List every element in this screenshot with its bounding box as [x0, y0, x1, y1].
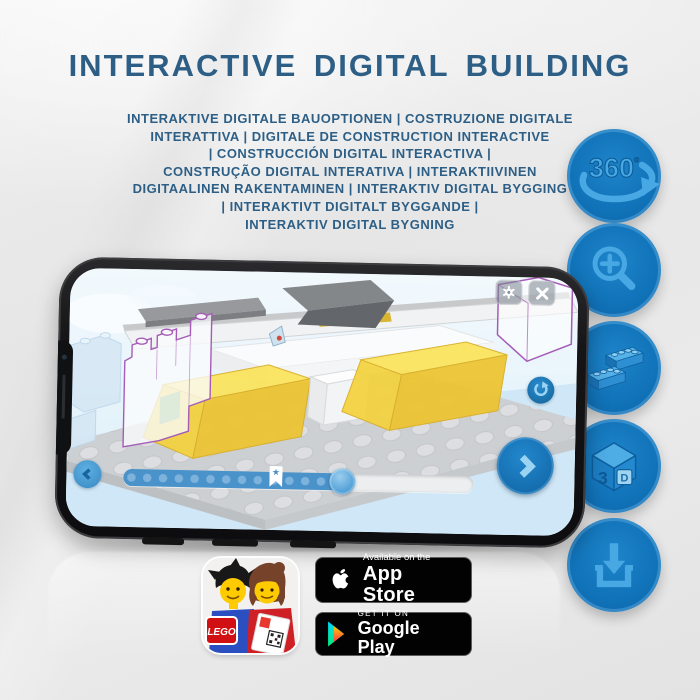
- google-play-text: GET IT ON Google Play: [358, 610, 460, 658]
- phone-reflection: [48, 552, 560, 698]
- next-chevron-icon: [508, 448, 543, 483]
- degree-sign: º: [634, 154, 639, 170]
- back-chevron-icon: [78, 465, 96, 483]
- subtitle-line: INTERAKTIV DIGITAL BYGNING: [50, 216, 650, 234]
- phone-button: [290, 540, 336, 548]
- zoom-in-icon: [581, 237, 647, 303]
- feature-download: [567, 518, 661, 612]
- google-play-triangle-icon: [327, 621, 349, 647]
- phone-screen: ★: [65, 268, 578, 537]
- download-icon: [581, 532, 647, 598]
- gear-icon: [500, 284, 517, 301]
- subtitle: INTERAKTIVE DIGITALE BAUOPTIONEN | COSTR…: [50, 110, 650, 233]
- app-store-badge[interactable]: Available on the App Store: [315, 557, 472, 603]
- rotate-icon: [531, 380, 550, 399]
- poster: INTERACTIVE DIGITAL BUILDING INTERAKTIVE…: [0, 0, 700, 700]
- lego-scene: [65, 268, 578, 537]
- app-store-line1: Available on the: [363, 553, 460, 563]
- subtitle-line: CONSTRUÇÃO DIGITAL INTERATIVA | INTERAKT…: [50, 163, 650, 181]
- phone-mockup: ★: [54, 256, 590, 548]
- subtitle-line: INTERAKTIVE DIGITALE BAUOPTIONEN | COSTR…: [50, 110, 650, 128]
- speaker-slit: [62, 374, 66, 418]
- cube-d-label: D: [620, 473, 628, 485]
- settings-button[interactable]: [495, 280, 523, 306]
- app-store-line2: App Store: [363, 564, 460, 607]
- apple-logo-icon: [327, 566, 354, 595]
- google-play-line2: Google Play: [358, 619, 460, 658]
- 3d-cube-icon: 3 D: [579, 431, 649, 501]
- subtitle-line: INTERATTIVA | DIGITALE DE CONSTRUCTION I…: [50, 128, 650, 146]
- phone-notch: [56, 340, 73, 454]
- subtitle-line: | INTERAKTIVT DIGITALT BYGGANDE |: [50, 198, 650, 216]
- close-button[interactable]: [528, 280, 556, 306]
- phone-button: [212, 539, 258, 547]
- 360-text: 360: [589, 153, 634, 183]
- lego-logo-text: LEGO: [207, 627, 236, 638]
- brick-stack-icon: [579, 333, 649, 403]
- page-title: INTERACTIVE DIGITAL BUILDING: [0, 48, 700, 84]
- phone-button: [142, 537, 184, 545]
- camera-dot: [62, 354, 67, 359]
- google-play-badge[interactable]: GET IT ON Google Play: [315, 612, 472, 656]
- subtitle-line: | CONSTRUCCIÓN DIGITAL INTERACTIVA |: [50, 145, 650, 163]
- lego-minifigures-art: LEGO: [203, 558, 298, 653]
- close-icon: [535, 286, 549, 300]
- subtitle-line: DIGITAALINEN RAKENTAMINEN | INTERAKTIV D…: [50, 180, 650, 198]
- lego-app-icon[interactable]: LEGO: [203, 558, 298, 653]
- cube-3-label: 3: [598, 468, 608, 488]
- feature-360-rotation: 360º: [567, 129, 661, 223]
- 360-label: 360º: [567, 153, 661, 184]
- app-store-text: Available on the App Store: [363, 553, 460, 606]
